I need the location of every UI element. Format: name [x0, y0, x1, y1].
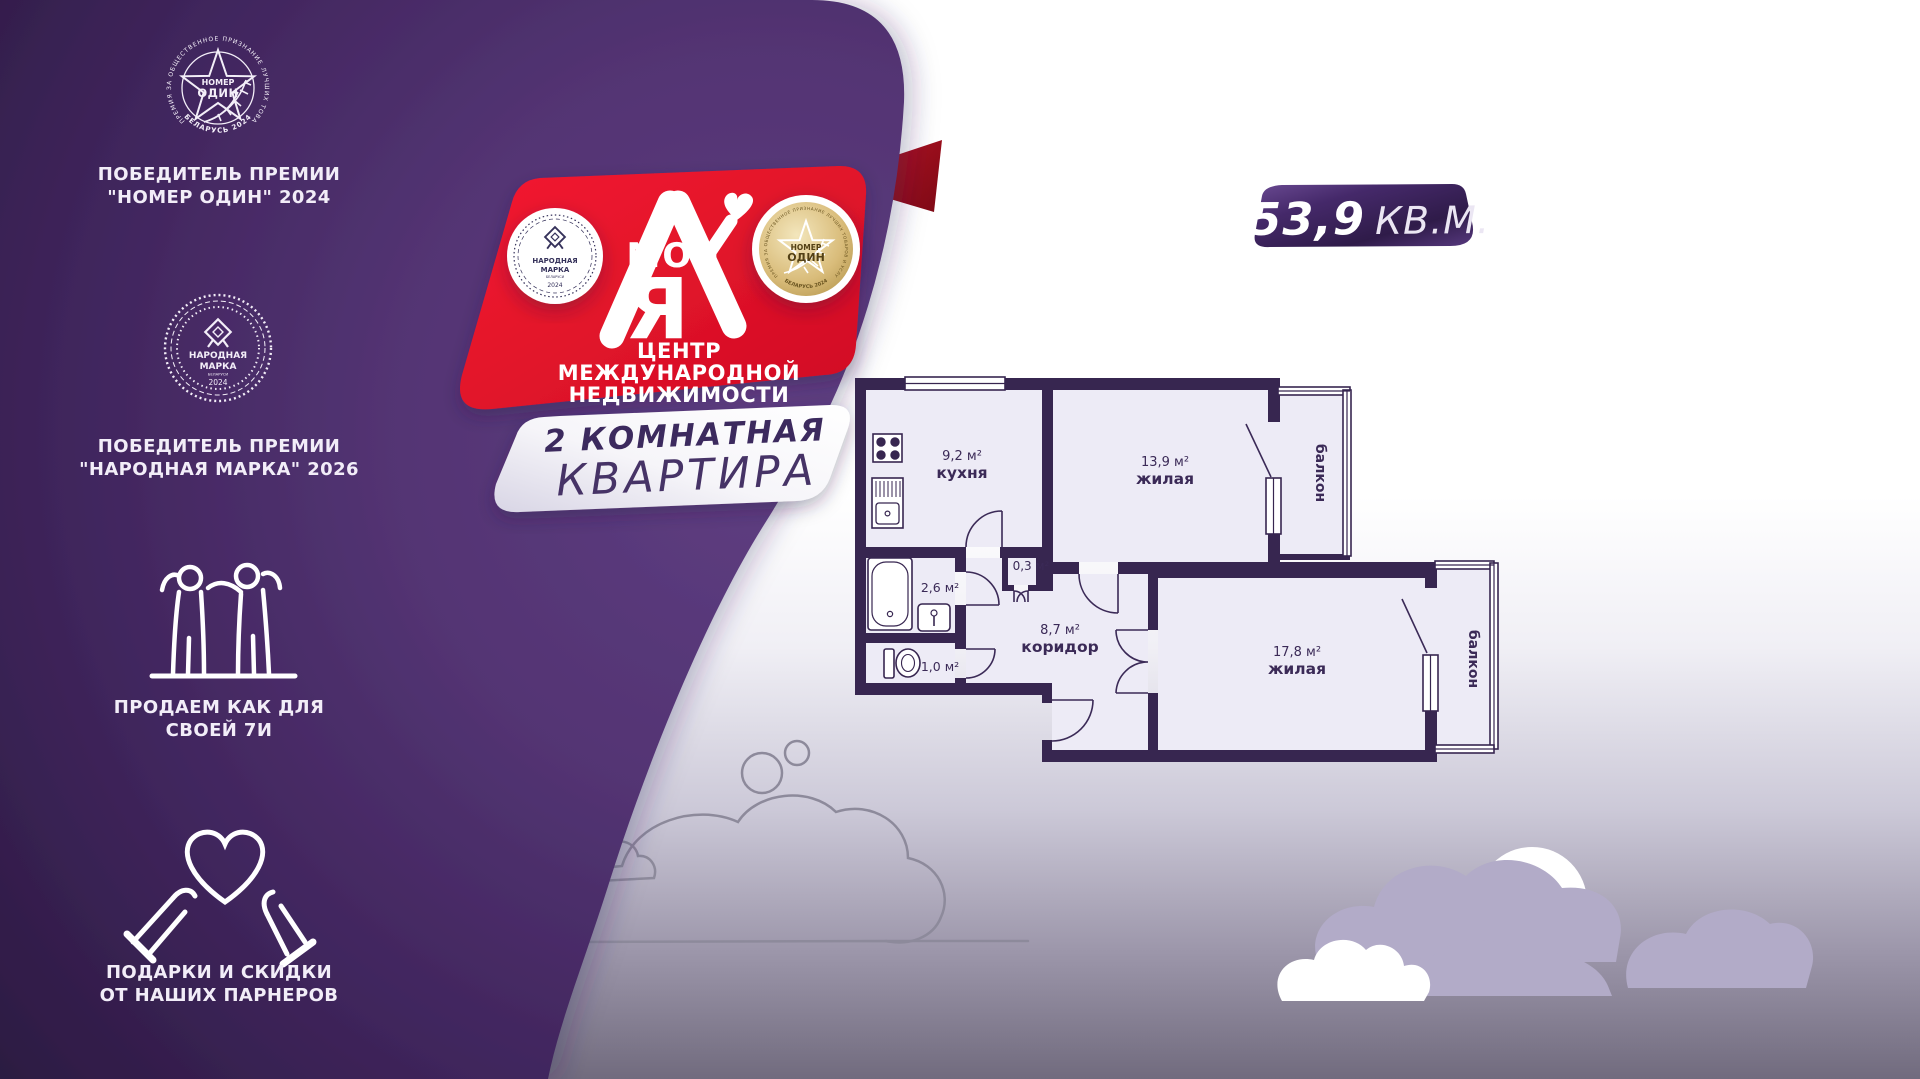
mark-year: 2024: [208, 378, 227, 387]
caption-line: СВОЕЙ 7И: [38, 719, 400, 742]
cloud-swirl-icon: [742, 753, 782, 793]
filled-clouds: [1277, 847, 1813, 1001]
medal-word2: ОДИН: [787, 251, 825, 264]
bathtub-icon: [868, 558, 912, 630]
label-living1-name: жилая: [1136, 470, 1194, 488]
caption-line: ПОБЕДИТЕЛЬ ПРЕМИИ: [38, 163, 400, 186]
label-kitchen-area: 9,2 м²: [942, 449, 982, 464]
toilet-icon: [884, 649, 920, 678]
tagline-line2: НЕДВИЖИМОСТИ: [520, 384, 838, 406]
label-kitchen-name: кухня: [936, 464, 987, 482]
label-balcony-bottom: балкон: [1465, 630, 1481, 688]
caption-line: ПРОДАЕМ КАК ДЛЯ: [38, 696, 400, 719]
award-top-caption: ПОБЕДИТЕЛЬ ПРЕМИИ "НОМЕР ОДИН" 2024: [38, 163, 400, 209]
area-value: 53,9: [1250, 192, 1365, 246]
mark-word2: МАРКА: [200, 362, 237, 372]
award-mark-caption: ПОБЕДИТЕЛЬ ПРЕМИИ "НАРОДНАЯ МАРКА" 2026: [38, 435, 400, 481]
label-wc-area: 1,0 м²: [921, 659, 959, 674]
floor-plan: 9,2 м² кухня 13,9 м² жилая 2,6 м² 0,3 м²…: [855, 377, 1498, 762]
mark-word1: НАРОДНАЯ: [189, 351, 247, 361]
gifts-caption: ПОДАРКИ И СКИДКИ ОТ НАШИХ ПАРНЕРОВ: [38, 961, 400, 1007]
medal-year: 2024: [547, 282, 562, 289]
caption-line: ПОДАРКИ И СКИДКИ: [38, 961, 400, 984]
brand-tagline: ЦЕНТР МЕЖДУНАРОДНОЙ НЕДВИЖИМОСТИ: [520, 340, 838, 406]
sink-counter-icon: [872, 478, 903, 528]
family-caption: ПРОДАЕМ КАК ДЛЯ СВОЕЙ 7И: [38, 696, 400, 742]
mark-sub: БЕЛАРУСИ: [208, 372, 229, 377]
label-corridor-name: коридор: [1021, 638, 1098, 656]
banner-medal-narodnaya: НАРОДНАЯ МАРКА БЕЛАРУСИ 2024: [507, 208, 603, 304]
scene: НОМЕР ОДИН ПРЕМИЯ ЗА ОБЩЕСТВЕННОЕ ПРИЗНА…: [0, 0, 1920, 1079]
label-living2-name: жилая: [1268, 660, 1326, 678]
area-unit: КВ.М.: [1375, 198, 1490, 243]
basin-icon: [918, 604, 950, 631]
label-living1-area: 13,9 м²: [1141, 455, 1189, 470]
medal-word2: МАРКА: [541, 266, 570, 274]
purple-panel: [0, 0, 904, 1079]
tagline-line1: ЦЕНТР МЕЖДУНАРОДНОЙ: [520, 340, 838, 384]
caption-line: "НОМЕР ОДИН" 2024: [38, 186, 400, 209]
medal-word1: НАРОДНАЯ: [532, 257, 577, 265]
label-balcony-top: балкон: [1312, 444, 1328, 502]
stamp-word2: ОДИН: [197, 86, 238, 100]
label-closet-area: 0,3 м²: [1013, 559, 1050, 573]
label-living2-area: 17,8 м²: [1273, 645, 1321, 660]
banner-medal-gold: НОМЕР ОДИН ПРЕМИЯ ЗА ОБЩЕСТВЕННОЕ ПРИЗНА…: [752, 195, 860, 303]
stove-icon: [873, 434, 902, 462]
medal-sub: БЕЛАРУСИ: [546, 275, 565, 279]
apartment-area: 53,9 КВ.М.: [1266, 191, 1474, 246]
room-balcony-bottom: [1437, 565, 1492, 748]
apartment-type: 2 КОМНАТНАЯ КВАРТИРА: [531, 413, 840, 506]
caption-line: "НАРОДНАЯ МАРКА" 2026: [38, 458, 400, 481]
label-bathroom-area: 2,6 м²: [921, 580, 959, 595]
flyer: НОМЕР ОДИН ПРЕМИЯ ЗА ОБЩЕСТВЕННОЕ ПРИЗНА…: [0, 0, 1920, 1079]
label-corridor-area: 8,7 м²: [1040, 623, 1080, 638]
caption-line: ПОБЕДИТЕЛЬ ПРЕМИИ: [38, 435, 400, 458]
caption-line: ОТ НАШИХ ПАРНЕРОВ: [38, 984, 400, 1007]
